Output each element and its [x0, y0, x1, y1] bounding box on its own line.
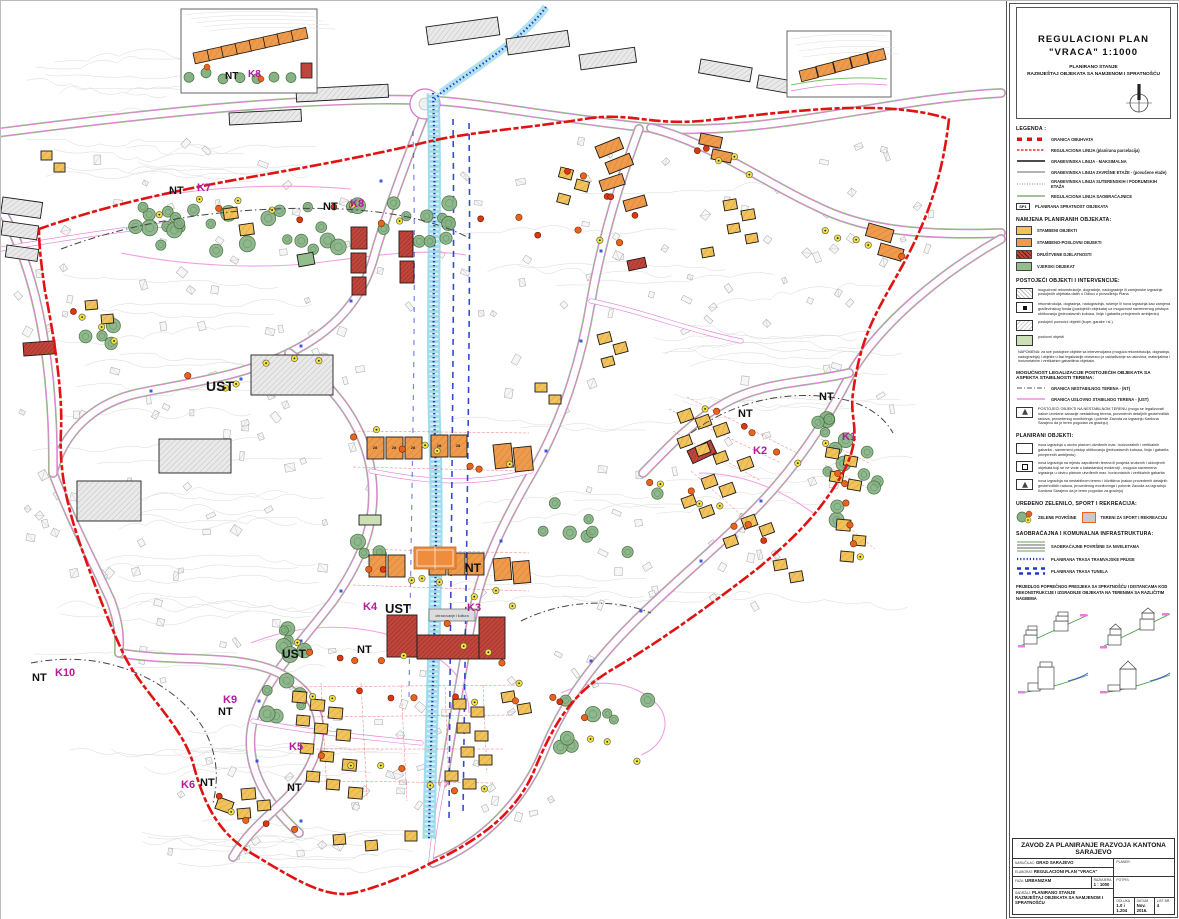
- map-label-nt-18: NT: [32, 672, 47, 684]
- legend-row-granica: GRANICA OBUHVATA: [1016, 135, 1171, 143]
- north-arrow-icon: [1124, 82, 1154, 116]
- footer-label: ELABORAT:: [1015, 870, 1033, 874]
- legalizacija-label: GRANICA NESTABILNOG TERENA - (NT): [1051, 386, 1130, 391]
- legend-label: GRANICA OBUHVATA: [1051, 137, 1093, 142]
- map-label-nt-21: NT: [218, 706, 233, 718]
- footer-value: 4: [1157, 903, 1172, 908]
- map-label-nt-23: NT: [200, 777, 215, 789]
- footer-faza-razmjera: FAZA: URBANIZAM RAZMJERA 1 : 1000: [1013, 877, 1113, 889]
- footer-narucilac: NARUČILAC: GRAD SARAJEVO: [1013, 859, 1113, 868]
- map-label-k7-1: K7: [197, 182, 211, 194]
- building-unit-label: 28: [392, 445, 397, 450]
- footer-list: LIST BR. 4: [1155, 898, 1174, 914]
- cross-section-diagram-3: [1016, 653, 1090, 699]
- footer-potpis: POTPIS:: [1114, 877, 1174, 897]
- legend-row-regulaciona: REGULACIONA LINIJA (planirana parcelacij…: [1016, 146, 1171, 154]
- footer-label: NARUČILAC:: [1015, 861, 1035, 865]
- saobracaj-row-povrsine: SAOBRAĆAJNE POVRŠINE SA NIVELETAMA: [1016, 540, 1171, 552]
- postojeci-item-3: postojeći pomoćni objekti (šupe, garaže …: [1016, 320, 1171, 331]
- planirani-text: nova izgradnja na mjestu zapuštenih tere…: [1038, 461, 1171, 476]
- footer-organization: ZAVOD ZA PLANIRANJE RAZVOJA KANTONA SARA…: [1013, 839, 1174, 859]
- footer-value: Nov. 2016.: [1137, 903, 1152, 913]
- namjena-row-vjerski: VJERSKI OBJEKAT: [1016, 262, 1171, 271]
- map-label-k2-10: K2: [753, 445, 767, 457]
- map-label-k6-22: K6: [181, 779, 195, 791]
- saobracaj-label: PLANIRANA TRASA TUNELA: [1051, 569, 1108, 574]
- map-label-k4-12: K4: [363, 601, 378, 613]
- legalizacija-row-nt: GRANICA NESTABILNOG TERENA - (NT): [1016, 384, 1171, 392]
- map-label-ust-15: UST: [282, 647, 307, 661]
- nova-izgradnja-zapusteni-swatch: [1016, 461, 1033, 472]
- zelenilo-title: UREĐENO ZELENILO, SPORT I REKREACIJA:: [1016, 501, 1171, 507]
- saobracaj-row-tramvaj: PLANIRANA TRASA TRAMVAJSKE PRUGE: [1016, 555, 1171, 563]
- map-label-nt-24: NT: [287, 782, 302, 794]
- postojeci-text: poslovni objekti: [1038, 335, 1064, 340]
- map-label-nt-2: NT: [323, 201, 338, 213]
- building-unit-label: 28: [411, 445, 416, 450]
- map-label-nt-4: NT: [225, 71, 238, 82]
- footer-value: 1.0 i 1.204: [1116, 903, 1131, 913]
- namjena-row-drustvene: DRUŠTVENE DJELATNOSTI: [1016, 250, 1171, 259]
- regulaciona-saobracajnica-swatch: [1016, 192, 1046, 200]
- legalizacija-title: MOGUĆNOST LEGALIZACIJE POSTOJEĆIH OBJEKA…: [1016, 371, 1171, 381]
- map-label-k10-19: K10: [55, 667, 75, 679]
- legend-row-zavrsna-etaza: GRAĐEVINSKA LINIJA ZAVRŠNE ETAŽE - (povu…: [1016, 168, 1171, 176]
- legend-title: LEGENDA :: [1016, 126, 1171, 132]
- drustvene-swatch: [1016, 250, 1032, 259]
- namjena-label: STAMBENI OBJEKTI: [1037, 228, 1077, 233]
- namjena-row-stambeni: STAMBENI OBJEKTI: [1016, 226, 1171, 235]
- legend-panel-frame: REGULACIONI PLAN "VRACA" 1:1000 PLANIRAN…: [1009, 3, 1178, 918]
- map-label-k8-3: K8: [350, 198, 364, 210]
- footer-value: REGULACIONI PLAN "VRACA": [1034, 869, 1098, 874]
- planirani-text: nova izgradnja u okviru planom utvrđenih…: [1038, 443, 1171, 458]
- legend-row-saobracajnica: REGULACIONA LINIJA SAOBRAĆAJNICE: [1016, 192, 1171, 200]
- map-label-k1-9: K1: [842, 431, 856, 443]
- map-label-nt-7: NT: [738, 408, 753, 420]
- granica-nt-swatch: [1016, 384, 1046, 392]
- cross-section-diagram-2: [1098, 605, 1172, 651]
- zelene-povrsine-item: ZELENE POVRŠINE: [1016, 510, 1076, 524]
- footer-value: GRAD SARAJEVO: [1036, 860, 1074, 865]
- postojeci-title: POSTOJEĆI OBJEKTI I INTERVENCIJE:: [1016, 278, 1171, 284]
- map-label-ust-6: UST: [206, 378, 234, 394]
- map-label-k5-17: K5: [289, 741, 303, 753]
- legalizacija-label: GRANICA USLOVNO STABILNOG TERENA - (UST): [1051, 397, 1149, 402]
- postojeci-rekonstrukcija-swatch: [1016, 288, 1033, 299]
- zelenilo-label: ZELENE POVRŠINE: [1038, 515, 1076, 520]
- objekti-nestabilan-teren-swatch: [1016, 407, 1033, 418]
- planirani-text: nova izgradnja na nestabilnom terenu i k…: [1038, 479, 1171, 494]
- plan-subtitle-1: PLANIRANO STANJE: [1017, 65, 1170, 70]
- tunel-swatch: [1016, 566, 1046, 576]
- footer-label: FAZA:: [1015, 879, 1024, 883]
- legalizacija-text: POSTOJEĆI OBJEKTI NA NESTABILNOM TERENU …: [1038, 407, 1171, 427]
- map-label-nt-16: NT: [357, 644, 372, 656]
- legend-row-suterenska: GRAĐEVINSKA LINIJA SUTERENSKIH I PODRUMS…: [1016, 179, 1171, 189]
- footer-planer: PLANER:: [1114, 859, 1174, 877]
- legend-label: PLANIRANA SPRATNOST OBJEKATA: [1035, 204, 1108, 209]
- legend-panel: REGULACIONI PLAN "VRACA" 1:1000 PLANIRAN…: [1006, 1, 1179, 919]
- namjena-label: STAMBENO-POSLOVNI OBJEKTI: [1037, 240, 1102, 245]
- zavrsna-etaza-swatch: [1016, 168, 1046, 176]
- saobracaj-label: SAOBRAĆAJNE POVRŠINE SA NIVELETAMA: [1051, 544, 1139, 549]
- map-label-nt-0: NT: [169, 185, 184, 197]
- sport-swatch: [1082, 512, 1096, 523]
- saobracaj-row-tunel: PLANIRANA TRASA TUNELA: [1016, 566, 1171, 576]
- building-unit-label: 28: [456, 443, 461, 448]
- planirani-item-1: nova izgradnja u okviru planom utvrđenih…: [1016, 443, 1171, 458]
- postojeci-item-2: rekonstrukcija, dogradnja, nadogradnja, …: [1016, 302, 1171, 317]
- tramvaj-swatch: [1016, 555, 1046, 563]
- zelenilo-row: ZELENE POVRŠINE TERENI ZA SPORT I REKREA…: [1016, 510, 1171, 524]
- footer-title-block: ZAVOD ZA PLANIRANJE RAZVOJA KANTONA SARA…: [1012, 838, 1175, 915]
- legalizacija-item: POSTOJEĆI OBJEKTI NA NESTABILNOM TERENU …: [1016, 407, 1171, 427]
- saobracaj-label: PLANIRANA TRASA TRAMVAJSKE PRUGE: [1051, 557, 1135, 562]
- postojeci-text: rekonstrukcija, dogradnja, nadogradnja, …: [1038, 302, 1171, 317]
- regulaciona-linija-swatch: [1016, 146, 1046, 154]
- building-unit-label: 28: [437, 443, 442, 448]
- namjena-label: VJERSKI OBJEKAT: [1037, 264, 1075, 269]
- presjek-title: PRIJEDLOG POPREČNOG PRESJEKA SA SPRATNOŠ…: [1016, 584, 1171, 602]
- plan-sheet: obrazovanje i kultura2828282828 NTK7NTK8…: [0, 0, 1179, 919]
- legend-row-spratnost: SP1 PLANIRANA SPRATNOST OBJEKATA: [1016, 203, 1171, 210]
- cross-section-diagram-1: [1016, 605, 1090, 651]
- map-area: obrazovanje i kultura2828282828 NTK7NTK8…: [1, 1, 1006, 919]
- map-label-nt-11: NT: [465, 561, 482, 575]
- vjerski-swatch: [1016, 262, 1032, 271]
- map-label-k8-5: K8: [248, 69, 261, 80]
- nova-izgradnja-swatch: [1016, 443, 1033, 454]
- plan-subtitle-2: RAZMJEŠTAJ OBJEKATA SA NAMJENOM I SPRATN…: [1017, 72, 1170, 77]
- school-label: obrazovanje i kultura: [435, 614, 468, 618]
- footer-label: POTPIS:: [1116, 878, 1129, 882]
- footer-datum: DATUM Nov. 2016.: [1135, 898, 1155, 914]
- sport-tereni-item: TERENI ZA SPORT I REKREACIJU: [1082, 512, 1167, 523]
- suterenska-etaza-swatch: [1016, 180, 1046, 188]
- map-canvas: obrazovanje i kultura2828282828 NTK7NTK8…: [1, 1, 1006, 919]
- postojeci-item-1: mogućnost rekonstrukcije, dogradnje, nad…: [1016, 288, 1171, 299]
- planirani-item-3: nova izgradnja na nestabilnom terenu i k…: [1016, 479, 1171, 494]
- pomocni-objekti-swatch: [1016, 320, 1033, 331]
- legend-label: GRAĐEVINSKA LINIJA - MAKSIMALNA: [1051, 159, 1127, 164]
- footer-mini-row: ODLUKA 1.0 i 1.204 DATUM Nov. 2016. LIST…: [1114, 897, 1174, 914]
- legend-label: REGULACIONA LINIJA SAOBRAĆAJNICE: [1051, 194, 1132, 199]
- zelenilo-label: TERENI ZA SPORT I REKREACIJU: [1100, 515, 1167, 520]
- footer-value: 1 : 1000: [1094, 882, 1112, 887]
- legalizacija-row-ust: GRANICA USLOVNO STABILNOG TERENA - (UST): [1016, 395, 1171, 403]
- poslovni-objekti-swatch: [1016, 335, 1033, 346]
- planirani-title: PLANIRANI OBJEKTI:: [1016, 433, 1171, 439]
- title-block: REGULACIONI PLAN "VRACA" 1:1000 PLANIRAN…: [1016, 7, 1171, 119]
- map-label-k9-20: K9: [223, 694, 237, 706]
- postojeci-text: postojeći pomoćni objekti (šupe, garaže …: [1038, 320, 1113, 325]
- footer-elaborat: ELABORAT: REGULACIONI PLAN "VRACA": [1013, 868, 1113, 877]
- postojeci-text: mogućnost rekonstrukcije, dogradnje, nad…: [1038, 288, 1171, 298]
- granica-ust-swatch: [1016, 395, 1046, 403]
- cross-section-diagram-4: [1098, 653, 1172, 699]
- napomena-text: NAPOMENA: za sve postojeće objekte sa in…: [1018, 350, 1171, 364]
- namjena-row-stambeno-poslovni: STAMBENO-POSLOVNI OBJEKTI: [1016, 238, 1171, 247]
- footer-value: URBANIZAM: [1025, 878, 1051, 883]
- map-label-nt-8: NT: [819, 391, 834, 403]
- map-label-k3-14: K3: [467, 602, 481, 614]
- legend-row-gradjevinska-max: GRAĐEVINSKA LINIJA - MAKSIMALNA: [1016, 157, 1171, 165]
- postojeci-zamjena-swatch: [1016, 302, 1033, 313]
- legend-label: REGULACIONA LINIJA (planirana parcelacij…: [1051, 148, 1140, 153]
- footer-label: PLANER:: [1116, 860, 1130, 864]
- legend-label: GRAĐEVINSKA LINIJA SUTERENSKIH I PODRUMS…: [1051, 179, 1171, 189]
- footer-sadrzaj: SADRŽAJ: PLANIRANO STANJE RAZMJEŠTAJ OBJ…: [1013, 889, 1113, 906]
- nova-izgradnja-nestabilan-swatch: [1016, 479, 1033, 490]
- plan-title: REGULACIONI PLAN: [1017, 34, 1170, 45]
- saobracajne-povrsine-swatch: [1016, 540, 1046, 552]
- cross-section-diagrams: [1016, 605, 1171, 699]
- saobracaj-title: SAOBRAĆAJNA I KOMUNALNA INFRASTRUKTURA:: [1016, 531, 1171, 537]
- namjena-title: NAMJENA PLANIRANIH OBJEKATA:: [1016, 217, 1171, 223]
- planirani-item-2: nova izgradnja na mjestu zapuštenih tere…: [1016, 461, 1171, 476]
- trees-icon: [1016, 510, 1034, 524]
- granica-obuhvata-swatch: [1016, 135, 1046, 143]
- plan-name-scale: "VRACA" 1:1000: [1017, 47, 1170, 58]
- gradjevinska-linija-swatch: [1016, 157, 1046, 165]
- map-label-ust-13: UST: [385, 601, 411, 616]
- footer-value: RAZMJEŠTAJ OBJEKATA SA NAMJENOM I SPRATN…: [1015, 895, 1111, 905]
- building-unit-label: 28: [373, 445, 378, 450]
- stambeni-swatch: [1016, 226, 1032, 235]
- namjena-label: DRUŠTVENE DJELATNOSTI: [1037, 252, 1092, 257]
- stambeno-poslovni-swatch: [1016, 238, 1032, 247]
- footer-odluka: ODLUKA 1.0 i 1.204: [1114, 898, 1134, 914]
- sp1-tag: SP1: [1016, 203, 1030, 210]
- postojeci-item-4: poslovni objekti: [1016, 335, 1171, 346]
- legend-label: GRAĐEVINSKA LINIJA ZAVRŠNE ETAŽE - (povu…: [1051, 170, 1167, 175]
